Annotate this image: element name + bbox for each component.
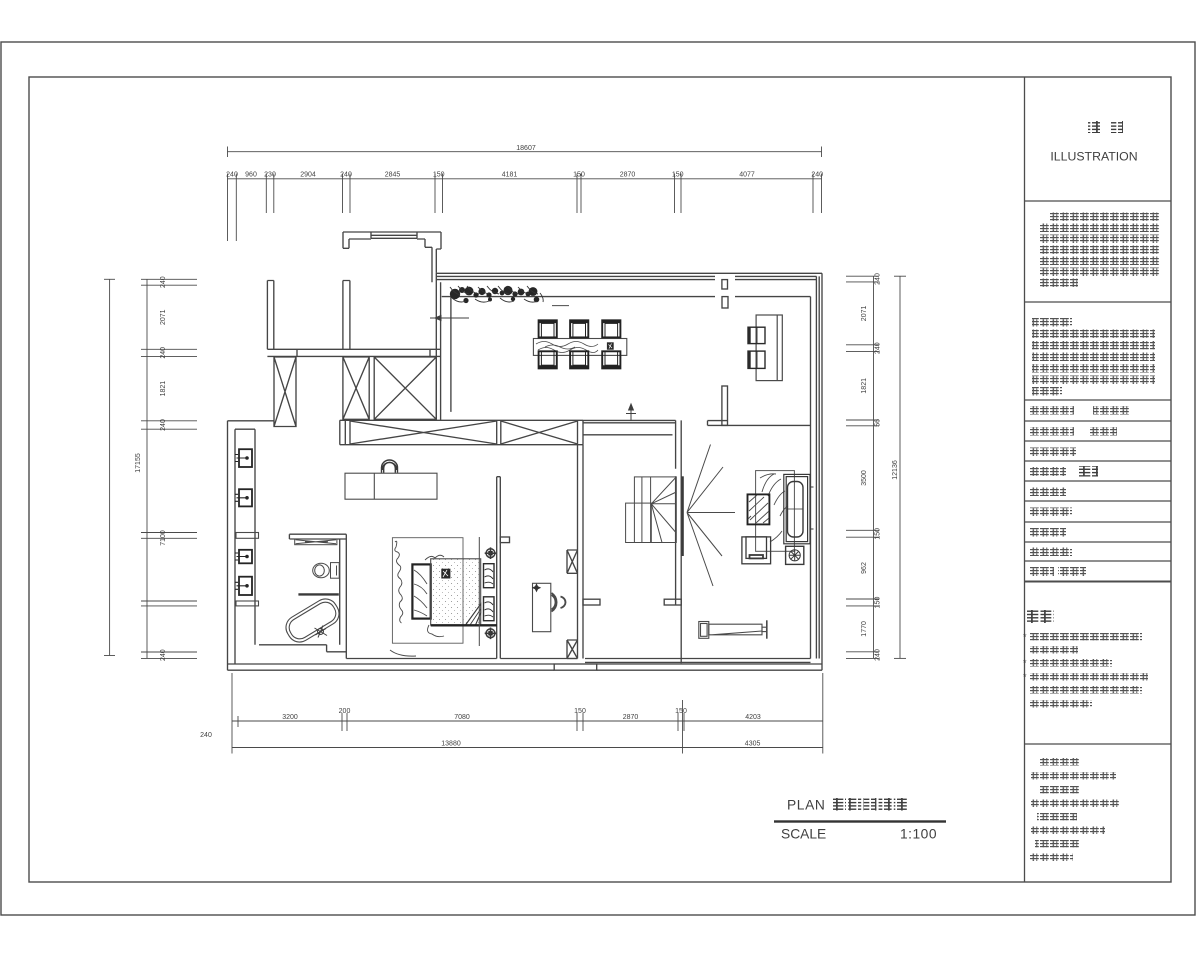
svg-text:4305: 4305 (745, 741, 761, 748)
svg-text:4203: 4203 (745, 714, 761, 721)
svg-text:ILLUSTRATION: ILLUSTRATION (1050, 150, 1137, 164)
svg-text:4077: 4077 (739, 172, 755, 179)
svg-text:12136: 12136 (892, 460, 899, 480)
svg-text:7080: 7080 (454, 714, 470, 721)
svg-text:1770: 1770 (861, 621, 868, 637)
svg-text:*: * (1023, 658, 1027, 668)
svg-text:3500: 3500 (861, 470, 868, 486)
svg-text:150: 150 (433, 172, 445, 179)
svg-text:4181: 4181 (502, 172, 518, 179)
svg-text:*: * (1023, 672, 1027, 682)
svg-text:2071: 2071 (160, 309, 167, 325)
svg-text:150: 150 (875, 597, 882, 609)
svg-text:150: 150 (875, 528, 882, 540)
svg-text:17155: 17155 (135, 453, 142, 473)
svg-text:1821: 1821 (861, 378, 868, 394)
svg-text:240: 240 (226, 172, 238, 179)
svg-text:2071: 2071 (861, 306, 868, 322)
svg-text:240: 240 (160, 649, 167, 661)
svg-text:240: 240 (160, 347, 167, 359)
svg-text:150: 150 (574, 708, 586, 715)
svg-text:200: 200 (339, 708, 351, 715)
svg-text:240: 240 (811, 172, 823, 179)
svg-text:962: 962 (861, 562, 868, 574)
svg-text:1821: 1821 (160, 381, 167, 397)
svg-text:2845: 2845 (385, 172, 401, 179)
svg-text:230: 230 (264, 172, 276, 179)
svg-text:13880: 13880 (441, 741, 461, 748)
svg-text:960: 960 (245, 172, 257, 179)
svg-text:18607: 18607 (516, 145, 536, 152)
svg-text:150: 150 (672, 172, 684, 179)
svg-text:*: * (1023, 632, 1027, 642)
svg-text:2904: 2904 (300, 172, 316, 179)
svg-text:240: 240 (200, 732, 212, 739)
svg-text:150: 150 (573, 172, 585, 179)
svg-text:1:100: 1:100 (900, 827, 937, 842)
svg-text:240: 240 (875, 342, 882, 354)
svg-text:3200: 3200 (282, 714, 298, 721)
svg-text:150: 150 (675, 708, 687, 715)
svg-text:2870: 2870 (620, 172, 636, 179)
svg-text:240: 240 (160, 276, 167, 288)
svg-text:PLAN: PLAN (787, 798, 825, 813)
svg-text:SCALE: SCALE (781, 827, 826, 842)
svg-text:7100: 7100 (160, 530, 167, 546)
svg-text:240: 240 (340, 172, 352, 179)
svg-text:56: 56 (875, 419, 882, 427)
svg-text:240: 240 (875, 649, 882, 661)
svg-text:240: 240 (875, 273, 882, 285)
svg-text:240: 240 (160, 419, 167, 431)
svg-text:2870: 2870 (623, 714, 639, 721)
